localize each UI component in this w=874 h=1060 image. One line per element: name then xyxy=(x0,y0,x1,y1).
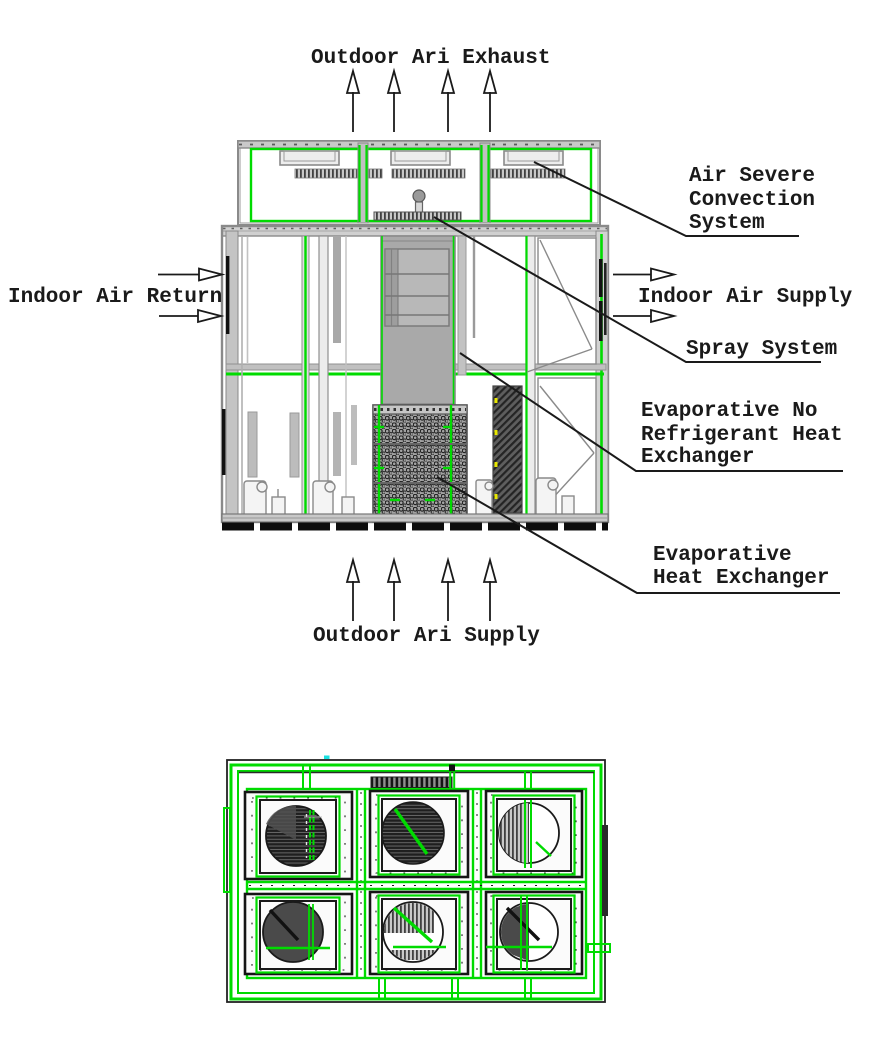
svg-text:Convection: Convection xyxy=(689,189,815,212)
svg-text:Outdoor Ari Exhaust: Outdoor Ari Exhaust xyxy=(311,47,550,70)
svg-text:Heat Exchanger: Heat Exchanger xyxy=(653,567,829,590)
svg-text:System: System xyxy=(689,212,765,235)
svg-text:Evaporative: Evaporative xyxy=(653,544,792,567)
svg-text:Exchanger: Exchanger xyxy=(641,446,754,469)
svg-text:Evaporative No: Evaporative No xyxy=(641,400,817,423)
svg-text:Indoor Air Supply: Indoor Air Supply xyxy=(638,286,853,309)
svg-text:Outdoor Ari Supply: Outdoor Ari Supply xyxy=(313,625,540,648)
svg-text:Refrigerant Heat: Refrigerant Heat xyxy=(641,424,843,447)
svg-text:Air Severe: Air Severe xyxy=(689,165,815,188)
svg-text:Spray System: Spray System xyxy=(686,338,837,361)
svg-text:Indoor Air Return: Indoor Air Return xyxy=(8,286,222,309)
